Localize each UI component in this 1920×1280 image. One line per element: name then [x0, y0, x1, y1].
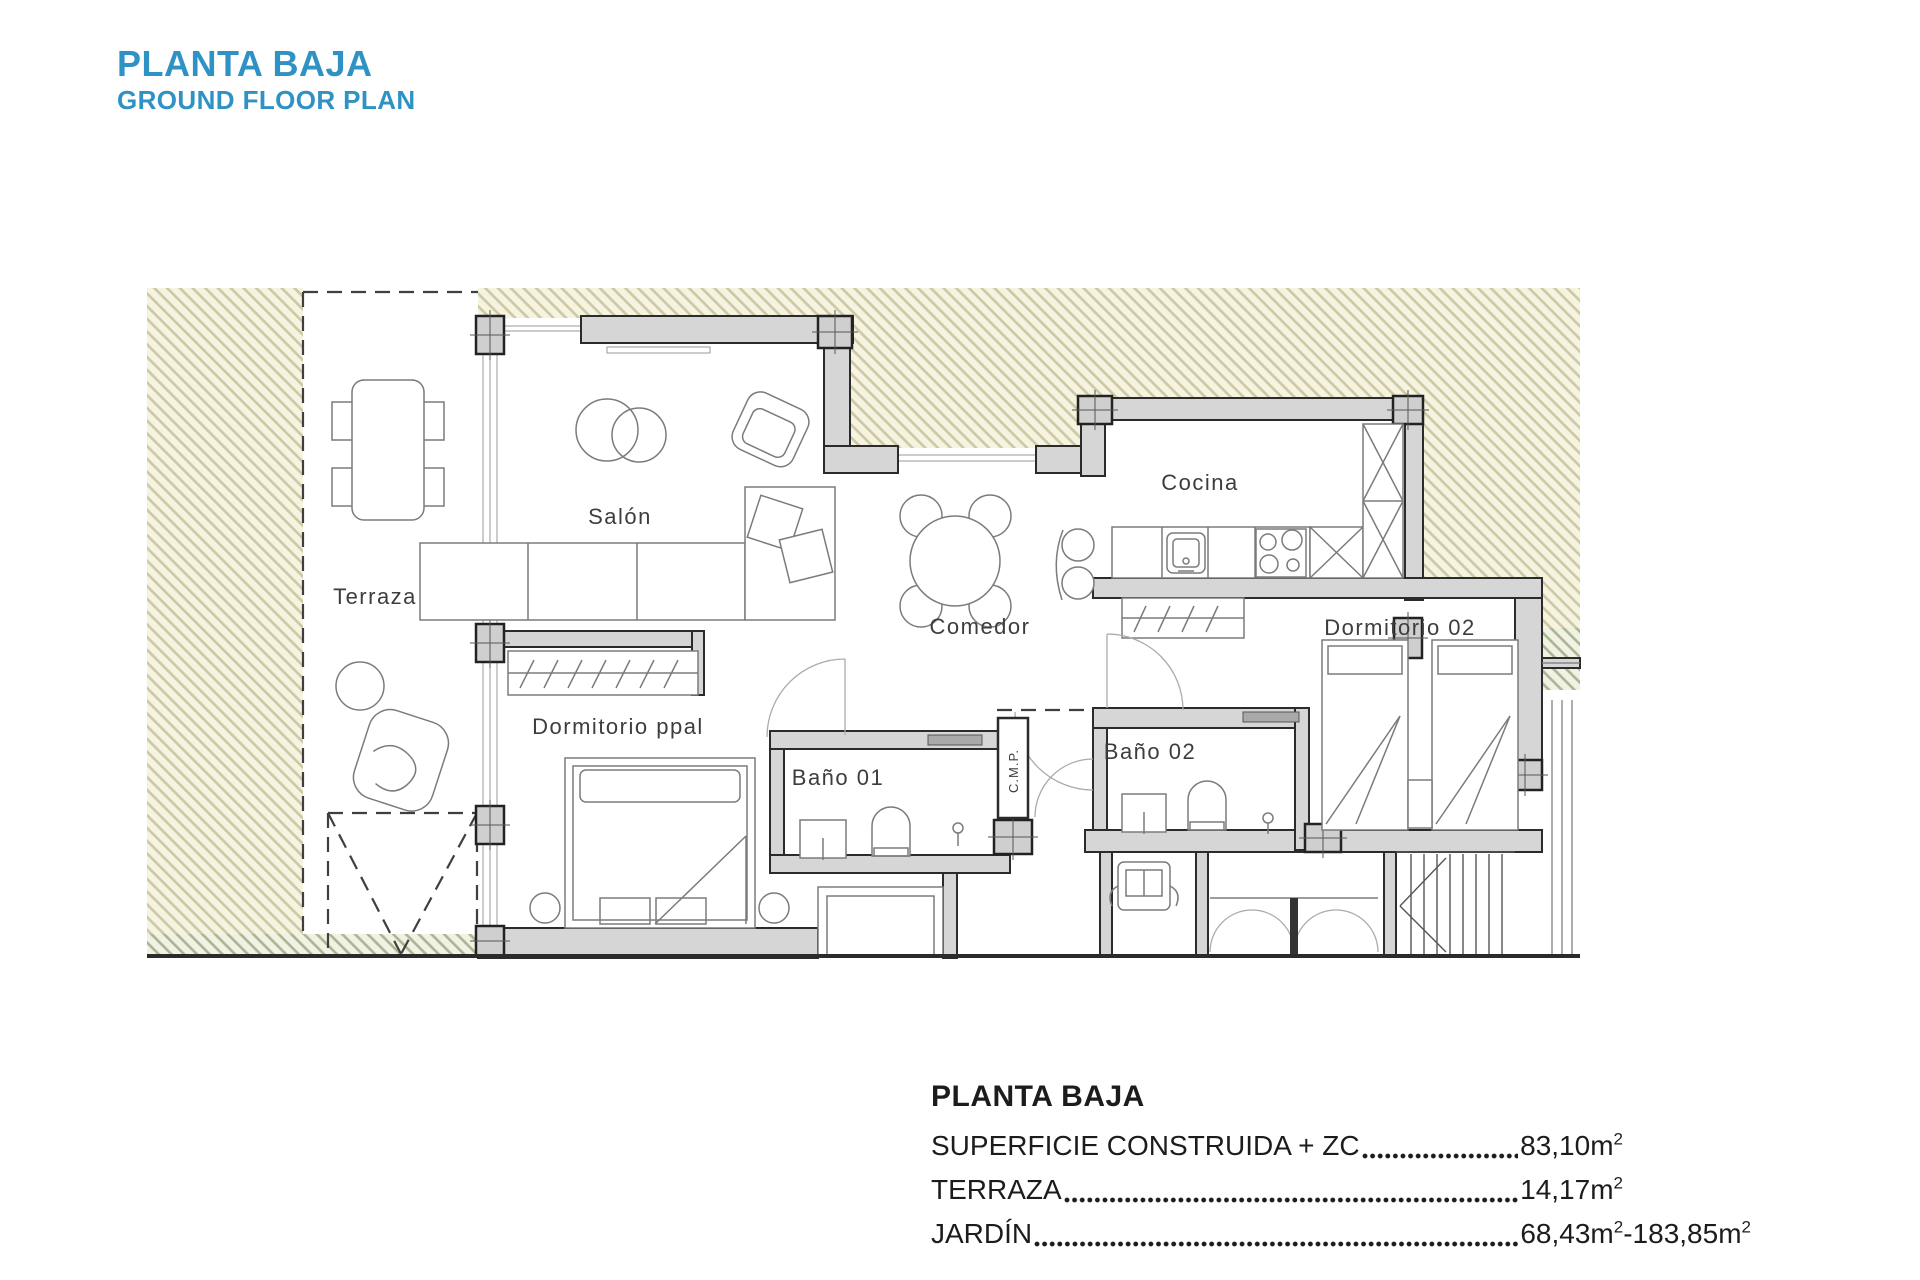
terrace-side-table	[336, 662, 384, 710]
room-label-dormitorio-ppal: Dormitorio ppal	[532, 714, 704, 739]
page: PLANTA BAJA GROUND FLOOR PLAN	[0, 0, 1920, 1280]
dotted-leader	[1064, 1196, 1518, 1204]
room-label-cocina: Cocina	[1161, 470, 1238, 495]
page-title: PLANTA BAJA	[117, 44, 416, 84]
summary-row-jardin: JARDÍN 68,43m2-183,85m2	[931, 1212, 1751, 1256]
summary-label: JARDÍN	[931, 1212, 1032, 1256]
summary-value: 14,17m2	[1520, 1168, 1623, 1212]
toilet-icon-bano02	[1188, 781, 1226, 830]
storage-recess	[818, 887, 943, 956]
sideboard	[1122, 598, 1244, 638]
room-label-dormitorio-02: Dormitorio 02	[1324, 615, 1476, 640]
surface-summary: PLANTA BAJA SUPERFICIE CONSTRUIDA + ZC 8…	[931, 1080, 1751, 1256]
room-label-salon: Salón	[588, 504, 652, 529]
bathroom1-sink	[800, 820, 846, 860]
summary-label: TERRAZA	[931, 1168, 1062, 1212]
dotted-leader	[1034, 1240, 1518, 1248]
dotted-leader	[1362, 1152, 1519, 1160]
room-label-bano-02: Baño 02	[1104, 739, 1196, 764]
sink-icon	[1167, 533, 1205, 573]
summary-value: 83,10m2	[1520, 1124, 1623, 1168]
summary-label: SUPERFICIE CONSTRUIDA + ZC	[931, 1124, 1360, 1168]
towel-bar-bano01	[928, 735, 982, 745]
page-header: PLANTA BAJA GROUND FLOOR PLAN	[117, 44, 416, 114]
cmp-shaft: C.M.P.	[998, 718, 1028, 818]
towel-bar-bano02	[1243, 712, 1299, 722]
hob-icon	[1256, 529, 1306, 577]
wardrobe-ppal	[508, 651, 698, 695]
toilet-icon-bano01	[872, 807, 910, 856]
room-label-terraza: Terraza	[333, 584, 417, 609]
room-label-bano-01: Baño 01	[792, 765, 884, 790]
door-post	[1290, 898, 1298, 954]
summary-row-construida: SUPERFICIE CONSTRUIDA + ZC 83,10m2	[931, 1124, 1623, 1168]
bed-ppal	[530, 758, 789, 928]
summary-value: 68,43m2-183,85m2	[1520, 1212, 1751, 1256]
room-label-comedor: Comedor	[930, 614, 1031, 639]
summary-header: PLANTA BAJA	[931, 1080, 1751, 1114]
cmp-label: C.M.P.	[1006, 749, 1021, 793]
washing-machine-icon	[1110, 862, 1178, 910]
summary-row-terraza: TERRAZA 14,17m2	[931, 1168, 1623, 1212]
page-subtitle: GROUND FLOOR PLAN	[117, 86, 416, 115]
bathroom2-sink	[1122, 794, 1166, 834]
